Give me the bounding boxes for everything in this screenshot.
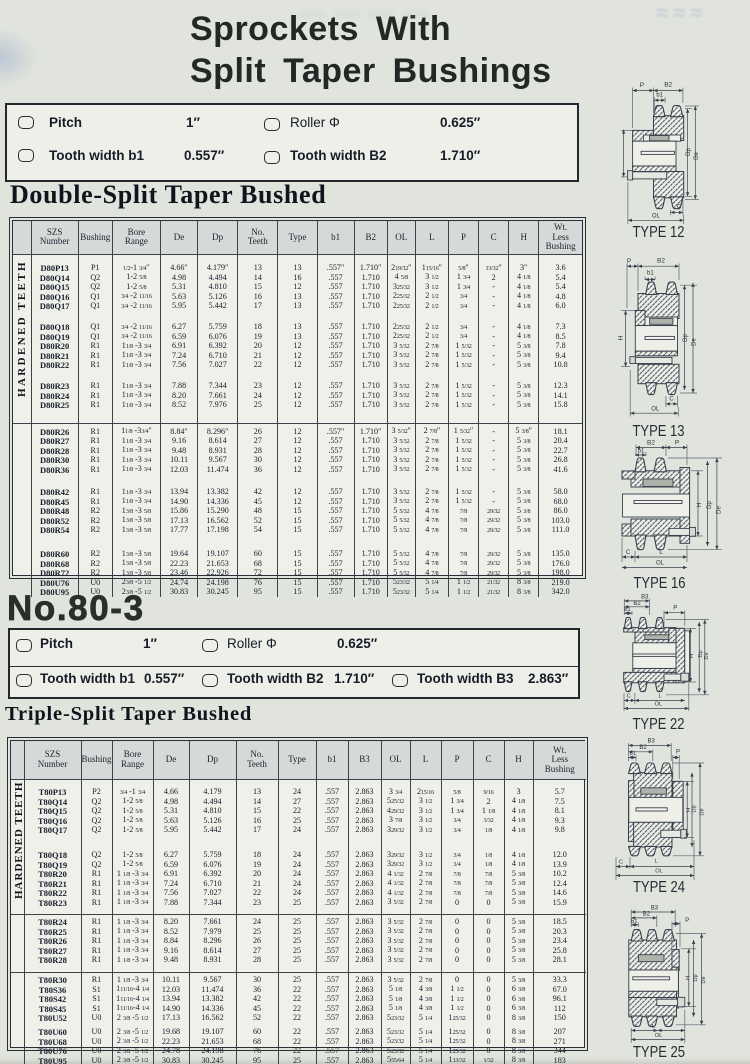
svg-text:De: De (694, 152, 700, 160)
svg-text:P: P (685, 918, 689, 924)
svg-text:TYPE 22: TYPE 22 (633, 716, 685, 733)
svg-text:B2: B2 (633, 601, 641, 607)
svg-text:P: P (640, 82, 644, 89)
svg-text:TYPE 24: TYPE 24 (633, 879, 685, 896)
svg-text:TYPE 25: TYPE 25 (633, 1044, 685, 1061)
svg-text:H: H (618, 335, 625, 340)
svg-text:b1: b1 (630, 751, 636, 757)
svg-text:Dp: Dp (698, 650, 704, 657)
svg-text:B3: B3 (641, 595, 649, 601)
svg-text:b1: b1 (631, 919, 637, 925)
svg-text:L: L (659, 550, 663, 556)
svg-text:Dp: Dp (692, 805, 698, 812)
svg-text:Dp: Dp (683, 334, 689, 342)
svg-text:b1: b1 (656, 93, 663, 99)
svg-text:OL: OL (651, 407, 660, 413)
svg-text:H: H (689, 654, 695, 658)
svg-text:C: C (669, 397, 674, 403)
svg-text:B2: B2 (664, 82, 672, 89)
svg-text:Dp: Dp (686, 148, 692, 156)
svg-text:TYPE 12: TYPE 12 (633, 224, 685, 241)
svg-text:b1: b1 (638, 449, 645, 455)
svg-text:TYPE 13: TYPE 13 (633, 423, 685, 440)
svg-text:TYPE 16: TYPE 16 (634, 575, 686, 592)
svg-text:B2: B2 (643, 912, 651, 918)
svg-text:C: C (677, 205, 682, 211)
svg-text:b1: b1 (624, 607, 630, 613)
svg-text:P: P (675, 440, 679, 447)
svg-text:L: L (658, 694, 661, 700)
svg-text:H: H (685, 976, 691, 980)
svg-text:B2: B2 (639, 745, 647, 751)
svg-text:OL: OL (655, 702, 662, 708)
svg-text:B2: B2 (657, 258, 665, 265)
svg-text:C: C (619, 859, 623, 865)
svg-text:Dp: Dp (693, 974, 699, 981)
svg-text:P: P (673, 606, 677, 612)
svg-text:P: P (627, 258, 631, 265)
svg-text:De: De (700, 808, 706, 815)
svg-text:Dp: Dp (707, 501, 713, 509)
svg-text:OL: OL (656, 561, 665, 567)
svg-text:B3: B3 (651, 905, 659, 911)
svg-text:OL: OL (655, 1033, 662, 1039)
svg-text:C: C (627, 694, 631, 700)
svg-text:C: C (626, 550, 631, 556)
svg-text:L: L (652, 1024, 655, 1030)
svg-text:OL: OL (652, 214, 661, 220)
svg-text:De: De (692, 338, 698, 346)
svg-text:De: De (717, 506, 723, 514)
svg-text:B3: B3 (648, 739, 656, 745)
svg-text:L: L (654, 859, 657, 865)
svg-text:De: De (701, 976, 707, 983)
svg-text:De: De (704, 652, 710, 659)
svg-text:b1: b1 (647, 270, 654, 276)
svg-text:B2: B2 (647, 440, 655, 447)
svg-text:OL: OL (655, 869, 662, 875)
svg-text:H: H (697, 503, 703, 507)
svg-text:P: P (676, 749, 680, 755)
